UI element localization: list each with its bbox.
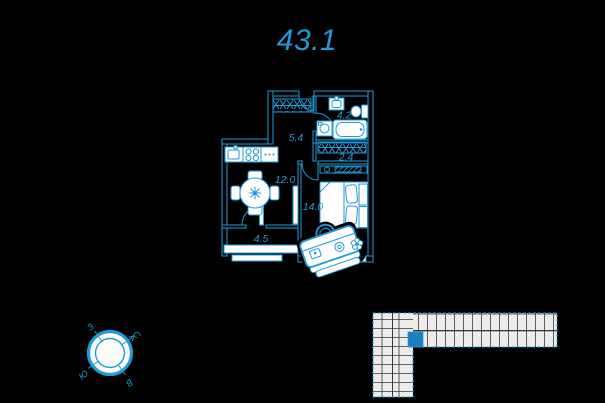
compass-east-label: В xyxy=(124,377,135,389)
toilet-icon xyxy=(351,105,368,118)
room-area-balcony: 4.5 xyxy=(254,233,269,245)
radiator-icon xyxy=(293,186,298,224)
washing-machine-icon xyxy=(317,121,332,136)
balcony-glazing xyxy=(224,245,298,253)
floor-plan: 5.4 4.2 xyxy=(222,91,373,281)
room-area-bathroom: 4.2 xyxy=(337,110,352,122)
room-area-wardrobe: 2.4 xyxy=(338,152,354,164)
bed-icon xyxy=(320,182,368,228)
coat-rack-icon xyxy=(273,99,311,112)
balcony-step xyxy=(232,255,282,261)
plant-icon xyxy=(249,187,261,199)
compass-icon: С В Ю З xyxy=(77,321,143,389)
compass-south-label: Ю xyxy=(77,368,90,382)
bedroom-door-icon xyxy=(302,164,318,180)
room-area-kitchen-living: 12.0 xyxy=(275,174,296,186)
building-highlight-unit[interactable] xyxy=(408,332,423,347)
dining-table-icon xyxy=(231,171,279,215)
room-area-hallway: 5.4 xyxy=(289,132,304,144)
bathtub-icon xyxy=(333,120,367,139)
kitchen-living-room: 12.0 xyxy=(225,146,298,224)
floor-plan-canvas: 43.1 xyxy=(0,0,605,403)
wardrobe-room: 2.4 xyxy=(318,142,366,164)
total-area-label: 43.1 xyxy=(277,24,337,57)
sink-icon xyxy=(329,97,344,111)
room-area-bedroom: 14.0 xyxy=(303,201,324,213)
tv-console-icon xyxy=(320,166,367,173)
balcony-room: 4.5 xyxy=(224,233,298,261)
hallway-room: 5.4 xyxy=(273,99,311,144)
building-footprint xyxy=(373,313,557,397)
bathroom-room: 4.2 xyxy=(317,97,368,140)
kitchen-counter-icon xyxy=(225,146,278,162)
